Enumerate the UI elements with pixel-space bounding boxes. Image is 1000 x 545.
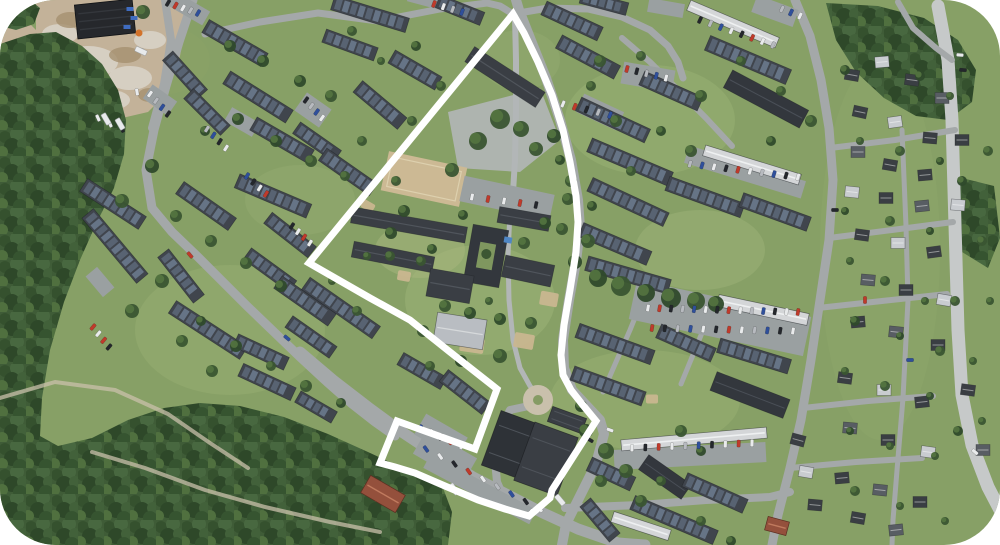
tree	[946, 92, 954, 100]
tree-highlight	[636, 51, 642, 57]
tree-highlight	[886, 442, 891, 447]
tree-highlight	[230, 340, 237, 347]
tree-highlight	[446, 164, 455, 173]
house	[879, 193, 893, 204]
tree	[377, 57, 385, 65]
car-body	[831, 208, 838, 211]
house	[854, 229, 869, 242]
tree-highlight	[525, 317, 532, 324]
tree-highlight	[137, 6, 146, 15]
tree-highlight	[696, 516, 702, 522]
car	[724, 440, 728, 447]
tree	[941, 517, 949, 525]
tree-highlight	[232, 113, 239, 120]
tree	[776, 86, 786, 96]
roundabout-island	[533, 395, 543, 405]
tree-highlight	[126, 305, 135, 314]
tree	[610, 115, 622, 127]
tree	[586, 81, 596, 91]
tree	[513, 121, 529, 137]
tree-highlight	[946, 92, 951, 97]
tree	[656, 126, 666, 136]
tree	[880, 276, 890, 286]
tree	[598, 443, 614, 459]
tree-highlight	[656, 476, 662, 482]
tree	[556, 223, 568, 235]
tree	[407, 116, 417, 126]
car	[670, 443, 674, 450]
tree	[427, 244, 437, 254]
car	[831, 208, 838, 211]
house	[844, 186, 859, 198]
tree	[357, 136, 367, 146]
crane	[136, 30, 143, 37]
house	[899, 285, 913, 296]
house	[951, 199, 966, 211]
tree-highlight	[357, 136, 363, 142]
tree	[385, 251, 395, 261]
container-body	[124, 25, 131, 29]
tree	[363, 252, 371, 260]
tree-highlight	[340, 171, 346, 177]
tree	[626, 166, 636, 176]
tree-highlight	[950, 296, 956, 302]
tree-highlight	[485, 297, 490, 302]
house	[888, 524, 903, 536]
construction-building	[74, 0, 135, 39]
tree	[587, 201, 597, 211]
tree-highlight	[983, 146, 989, 152]
car-body	[670, 443, 674, 450]
tree-highlight	[206, 365, 213, 372]
tree-highlight	[936, 157, 941, 162]
tree	[305, 155, 317, 167]
tree-highlight	[736, 56, 742, 62]
road	[513, 16, 516, 192]
tree	[766, 136, 776, 146]
tree	[445, 163, 459, 177]
tree-highlight	[841, 207, 846, 212]
tree	[675, 425, 687, 437]
tree	[398, 205, 410, 217]
tree-highlight	[336, 398, 342, 404]
tree-highlight	[146, 160, 155, 169]
tree	[957, 176, 967, 186]
car-body	[956, 53, 963, 57]
tree	[936, 157, 944, 165]
tree	[581, 234, 595, 248]
tree-highlight	[709, 297, 719, 307]
tree	[115, 194, 129, 208]
tree-highlight	[885, 216, 891, 222]
car	[630, 444, 634, 451]
tree	[490, 109, 510, 129]
house	[850, 511, 866, 524]
house	[913, 497, 927, 508]
tree	[439, 300, 451, 312]
tree-highlight	[305, 155, 312, 162]
tree-highlight	[850, 486, 856, 492]
tree	[547, 129, 561, 143]
car-body	[906, 358, 913, 361]
car	[644, 444, 648, 451]
tree-highlight	[205, 235, 212, 242]
tree	[539, 217, 551, 229]
house	[851, 147, 865, 158]
tree-highlight	[116, 195, 125, 204]
tree-highlight	[562, 193, 569, 200]
tree	[636, 51, 646, 61]
tree	[562, 193, 574, 205]
tree	[935, 346, 945, 356]
tree	[880, 381, 890, 391]
tree-highlight	[518, 237, 525, 244]
house	[835, 472, 850, 484]
tree	[846, 257, 854, 265]
tree-highlight	[196, 316, 202, 322]
tree-highlight	[294, 75, 301, 82]
house	[861, 274, 876, 286]
tree-highlight	[587, 201, 593, 207]
tree	[325, 90, 337, 102]
tree-highlight	[439, 300, 446, 307]
container-body	[131, 16, 138, 20]
tree-highlight	[931, 452, 936, 457]
car	[684, 442, 688, 449]
grass-patch	[820, 60, 940, 440]
car-body	[657, 443, 661, 450]
tree	[240, 257, 252, 269]
tree	[895, 146, 905, 156]
site-container	[127, 7, 134, 11]
tree-highlight	[726, 536, 732, 542]
tree	[352, 306, 362, 316]
tree	[224, 40, 236, 52]
tree-highlight	[896, 502, 901, 507]
tree-highlight	[156, 275, 165, 284]
tree	[611, 276, 631, 296]
tree	[125, 304, 139, 318]
tree-highlight	[240, 257, 247, 264]
tree-highlight	[635, 495, 642, 502]
site-container	[124, 25, 131, 29]
tree-highlight	[620, 465, 629, 474]
house	[872, 484, 887, 496]
tree-highlight	[555, 155, 561, 161]
tree	[257, 55, 269, 67]
tree	[300, 380, 312, 392]
tree	[637, 284, 655, 302]
container-body	[127, 7, 134, 11]
tree	[841, 207, 849, 215]
tree	[950, 296, 960, 306]
tree	[846, 427, 854, 435]
tree	[494, 313, 506, 325]
car-body	[750, 439, 754, 446]
tree-highlight	[840, 65, 846, 71]
tree-highlight	[626, 166, 632, 172]
tree-highlight	[385, 251, 391, 257]
tree	[347, 26, 357, 36]
tree	[885, 216, 895, 226]
tree-highlight	[300, 380, 307, 387]
tree	[270, 135, 282, 147]
tree	[841, 367, 849, 375]
tree	[336, 398, 346, 408]
tree-highlight	[494, 313, 501, 320]
tree	[656, 476, 666, 486]
tree	[589, 269, 607, 287]
tree-highlight	[685, 145, 692, 152]
tree	[695, 90, 707, 102]
tree-highlight	[896, 332, 901, 337]
tree	[926, 227, 934, 235]
tree	[196, 316, 206, 326]
tree	[458, 210, 468, 220]
house	[918, 169, 933, 181]
house	[887, 116, 902, 129]
tree	[736, 56, 746, 66]
tree	[385, 227, 397, 239]
tree-highlight	[656, 126, 662, 132]
tree	[619, 464, 633, 478]
tree	[525, 317, 537, 329]
tree-highlight	[176, 335, 183, 342]
tree	[518, 237, 530, 249]
tree	[856, 137, 864, 145]
tree	[953, 426, 963, 436]
aerial-photo-frame	[0, 0, 1000, 545]
tree-highlight	[407, 116, 413, 122]
tree	[915, 71, 925, 81]
tree	[230, 340, 242, 352]
tree	[266, 361, 276, 371]
tree-highlight	[514, 122, 524, 132]
tree-highlight	[688, 293, 699, 304]
tree-highlight	[347, 26, 353, 32]
tree	[206, 365, 218, 377]
tree	[340, 171, 350, 181]
tree-highlight	[325, 90, 332, 97]
tree	[391, 176, 401, 186]
tree-highlight	[427, 244, 433, 250]
tree-highlight	[594, 55, 601, 62]
tree	[425, 361, 435, 371]
tree-highlight	[352, 306, 358, 312]
tree-highlight	[266, 361, 272, 367]
tree	[840, 65, 850, 75]
tree-highlight	[586, 81, 592, 87]
tree	[485, 297, 493, 305]
car-body	[684, 442, 688, 449]
tree-highlight	[846, 257, 851, 262]
tree-highlight	[977, 236, 983, 242]
car-body	[863, 296, 866, 303]
tree	[205, 235, 217, 247]
tree	[805, 115, 817, 127]
tree-highlight	[856, 137, 861, 142]
tree-highlight	[895, 146, 901, 152]
tree-highlight	[921, 297, 926, 302]
tree	[294, 75, 306, 87]
car	[697, 442, 701, 449]
house	[955, 135, 969, 146]
tree-highlight	[539, 217, 546, 224]
tree	[850, 486, 860, 496]
tree	[416, 256, 426, 266]
tree-highlight	[599, 444, 609, 454]
tree-highlight	[850, 316, 856, 322]
tree	[969, 357, 977, 365]
house	[923, 132, 938, 144]
tree-highlight	[662, 289, 674, 301]
tree	[136, 5, 150, 19]
tree-highlight	[425, 361, 431, 367]
house	[936, 293, 952, 306]
tree-highlight	[941, 517, 946, 522]
tree	[275, 280, 287, 292]
tree-highlight	[470, 133, 481, 144]
house	[875, 56, 890, 68]
tree-highlight	[416, 256, 422, 262]
tree	[896, 332, 904, 340]
tree-highlight	[436, 81, 442, 87]
tree	[595, 475, 607, 487]
house	[891, 238, 905, 249]
tree-highlight	[391, 176, 397, 182]
tree-highlight	[170, 210, 177, 217]
tree	[886, 442, 894, 450]
tree	[926, 392, 934, 400]
car	[863, 296, 866, 303]
tree-highlight	[915, 71, 921, 77]
tree-highlight	[363, 252, 368, 257]
tree-highlight	[398, 205, 405, 212]
tree	[896, 502, 904, 510]
tree-highlight	[841, 367, 846, 372]
house	[882, 158, 898, 171]
tree-highlight	[224, 40, 231, 47]
tree-highlight	[595, 475, 602, 482]
car-body	[959, 68, 966, 72]
tree-highlight	[805, 115, 812, 122]
tree-highlight	[411, 41, 417, 47]
tree	[594, 55, 606, 67]
tree	[493, 349, 507, 363]
tree-highlight	[458, 210, 464, 216]
tree	[529, 142, 543, 156]
car-body	[644, 444, 648, 451]
tree-highlight	[582, 235, 591, 244]
tree	[983, 146, 993, 156]
tree-highlight	[556, 223, 563, 230]
tree-highlight	[926, 392, 931, 397]
tree	[232, 113, 244, 125]
tree	[986, 297, 994, 305]
car	[959, 68, 966, 72]
tree-highlight	[880, 381, 886, 387]
tree	[635, 495, 647, 507]
tree-highlight	[766, 136, 772, 142]
tree-highlight	[926, 227, 931, 232]
house	[926, 246, 941, 259]
tree	[155, 274, 169, 288]
playground	[646, 395, 658, 404]
tree-highlight	[590, 270, 601, 281]
tree-highlight	[880, 276, 886, 282]
tree-highlight	[610, 115, 617, 122]
car	[750, 439, 754, 446]
site-container	[131, 16, 138, 20]
aerial-photo	[0, 0, 1000, 545]
screenshot	[0, 0, 1000, 545]
tree-highlight	[969, 357, 974, 362]
tree	[850, 316, 860, 326]
tree-highlight	[935, 346, 941, 352]
tree-highlight	[548, 130, 557, 139]
car	[710, 441, 714, 448]
tree-highlight	[491, 110, 503, 122]
tree-highlight	[612, 277, 624, 289]
tree-highlight	[494, 350, 503, 359]
car	[906, 358, 913, 361]
car-body	[630, 444, 634, 451]
tree	[921, 297, 929, 305]
car	[657, 443, 661, 450]
house	[798, 465, 814, 478]
car-body	[737, 440, 741, 447]
tree-highlight	[957, 176, 963, 182]
car	[956, 53, 963, 57]
car-body	[697, 442, 701, 449]
tree	[170, 210, 182, 222]
tree	[176, 335, 188, 347]
tree-highlight	[275, 280, 282, 287]
tree-highlight	[776, 86, 782, 92]
tree	[685, 145, 697, 157]
car-body	[710, 441, 714, 448]
tree	[145, 159, 159, 173]
tree	[555, 155, 565, 165]
tree	[464, 307, 476, 319]
tree-highlight	[986, 297, 991, 302]
tree	[469, 132, 487, 150]
tree-highlight	[675, 425, 682, 432]
house	[808, 499, 823, 511]
tree-highlight	[846, 427, 851, 432]
playground-surface	[646, 395, 658, 404]
tree-highlight	[978, 417, 983, 422]
tree-highlight	[464, 307, 471, 314]
tree-highlight	[257, 55, 264, 62]
tree	[931, 452, 939, 460]
tree	[977, 236, 987, 246]
tree-highlight	[530, 143, 539, 152]
car	[737, 440, 741, 447]
house	[960, 384, 975, 397]
tree	[696, 516, 706, 526]
tree	[436, 81, 446, 91]
tree-highlight	[695, 90, 702, 97]
tree	[411, 41, 421, 51]
tree-highlight	[953, 426, 959, 432]
tree	[978, 417, 986, 425]
tree-highlight	[385, 227, 392, 234]
house	[914, 200, 929, 212]
car-body	[724, 440, 728, 447]
tree-highlight	[270, 135, 277, 142]
tree-highlight	[377, 57, 382, 62]
